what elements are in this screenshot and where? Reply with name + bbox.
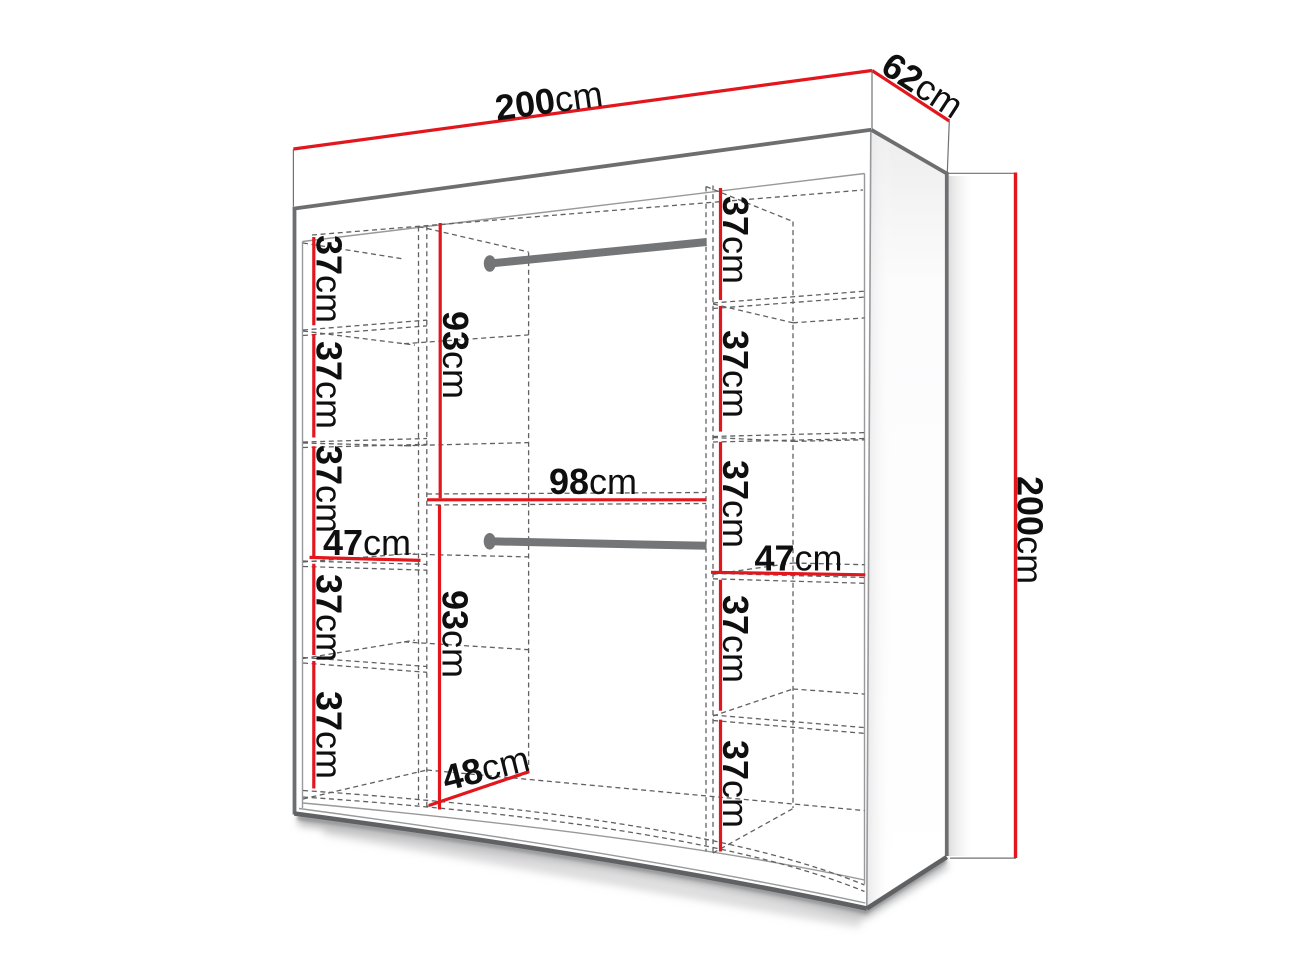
svg-text:37cm: 37cm	[715, 460, 756, 548]
svg-text:37cm: 37cm	[715, 196, 756, 284]
svg-text:37cm: 37cm	[715, 595, 756, 683]
svg-text:37cm: 37cm	[308, 691, 349, 779]
svg-text:98cm: 98cm	[549, 461, 637, 502]
svg-text:37cm: 37cm	[308, 574, 349, 662]
svg-text:37cm: 37cm	[308, 341, 349, 429]
svg-text:93cm: 93cm	[435, 590, 476, 678]
svg-text:93cm: 93cm	[435, 311, 476, 399]
svg-text:47cm: 47cm	[755, 538, 843, 579]
svg-text:37cm: 37cm	[715, 330, 756, 418]
svg-text:37cm: 37cm	[308, 235, 349, 323]
svg-text:37cm: 37cm	[715, 740, 756, 828]
svg-text:37cm: 37cm	[308, 445, 349, 533]
svg-text:200cm: 200cm	[1010, 476, 1051, 584]
